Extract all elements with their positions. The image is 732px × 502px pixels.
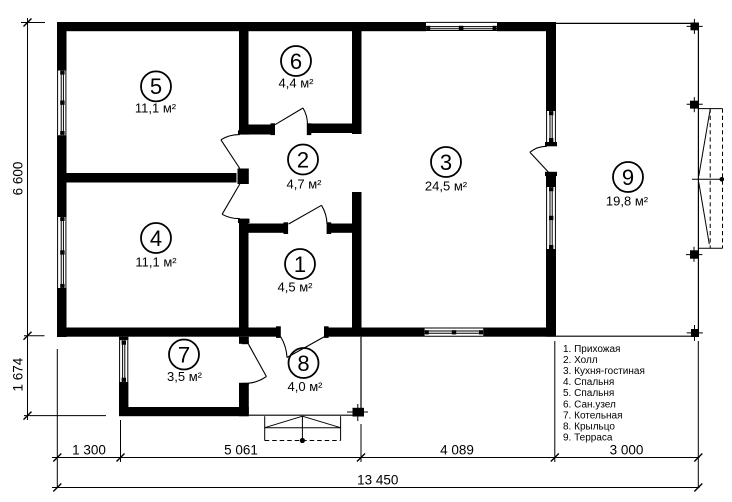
svg-text:5 061: 5 061 <box>224 443 258 458</box>
svg-text:4,7 м²: 4,7 м² <box>287 177 323 192</box>
svg-text:9. Терраса: 9. Терраса <box>563 433 613 444</box>
svg-text:6. Сан.узел: 6. Сан.узел <box>563 399 616 410</box>
svg-text:6: 6 <box>290 49 302 74</box>
svg-text:6 600: 6 600 <box>11 162 26 196</box>
svg-text:4. Спальня: 4. Спальня <box>563 377 614 388</box>
svg-text:1 300: 1 300 <box>72 443 106 458</box>
svg-text:9: 9 <box>622 165 634 190</box>
svg-text:19,8 м²: 19,8 м² <box>606 194 649 209</box>
svg-text:1 674: 1 674 <box>11 357 26 391</box>
svg-text:3,5 м²: 3,5 м² <box>167 369 203 384</box>
svg-text:7. Котельная: 7. Котельная <box>563 410 623 421</box>
svg-text:2: 2 <box>297 147 309 172</box>
svg-text:4,5 м²: 4,5 м² <box>278 280 314 295</box>
svg-text:3. Кухня-гостиная: 3. Кухня-гостиная <box>563 366 645 377</box>
svg-text:4,0 м²: 4,0 м² <box>288 379 324 394</box>
svg-text:4 089: 4 089 <box>440 443 474 458</box>
svg-text:5: 5 <box>150 74 162 99</box>
svg-text:1: 1 <box>294 252 306 277</box>
svg-text:11,1 м²: 11,1 м² <box>135 255 177 270</box>
svg-text:7: 7 <box>178 342 190 367</box>
svg-text:13 450: 13 450 <box>357 473 398 488</box>
svg-text:2. Холл: 2. Холл <box>563 355 598 366</box>
svg-text:3: 3 <box>440 150 452 175</box>
svg-text:8: 8 <box>297 351 309 376</box>
svg-text:8. Крыльцо: 8. Крыльцо <box>563 422 615 433</box>
svg-text:1. Прихожая: 1. Прихожая <box>563 344 620 355</box>
svg-text:24,5 м²: 24,5 м² <box>425 179 468 194</box>
svg-text:3 000: 3 000 <box>610 443 644 458</box>
svg-text:5. Спальня: 5. Спальня <box>563 388 614 399</box>
svg-text:11,1 м²: 11,1 м² <box>135 101 177 116</box>
svg-text:4: 4 <box>150 226 162 251</box>
svg-text:4,4 м²: 4,4 м² <box>279 76 315 91</box>
